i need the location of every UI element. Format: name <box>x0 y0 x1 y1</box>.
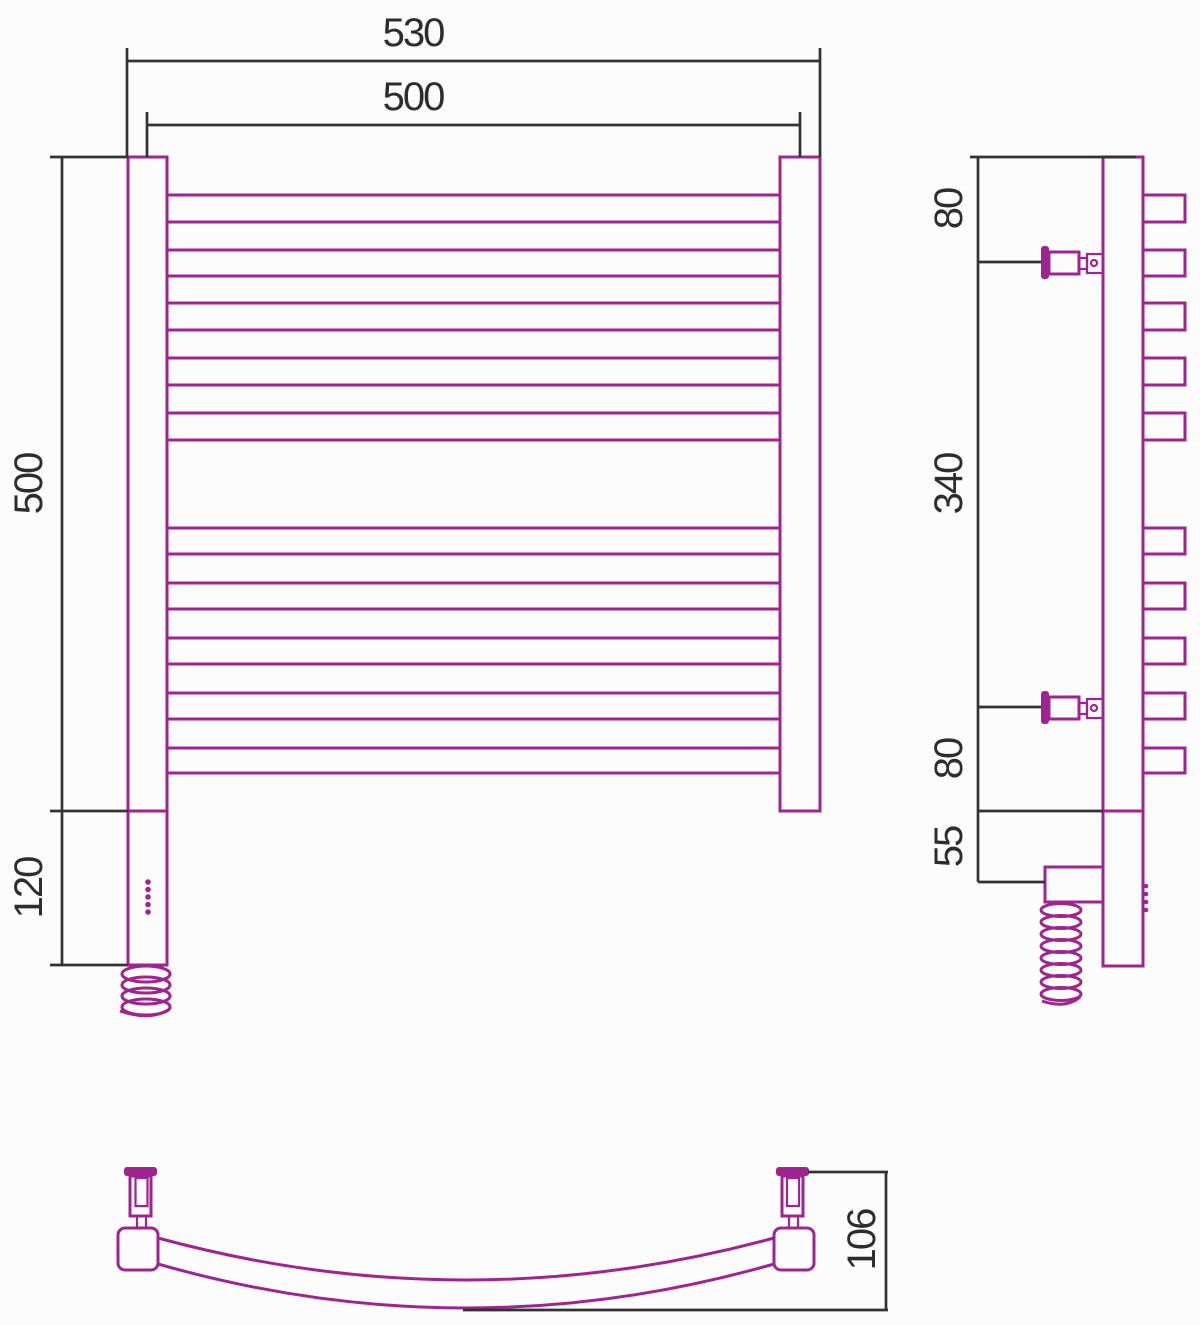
tube-row <box>167 583 780 609</box>
side-dimension-lines <box>970 157 1136 882</box>
dim-top-offset: 80 <box>927 188 971 229</box>
tube-row <box>167 358 780 385</box>
dim-center-width: 500 <box>383 75 444 119</box>
drawing-canvas: 530 500 500 120 <box>0 0 1200 1325</box>
curved-tube-outer <box>158 1238 774 1280</box>
tube-stub <box>1143 195 1185 222</box>
side-post <box>1103 157 1143 811</box>
tube-row <box>167 303 780 330</box>
wall-bracket-upper <box>1041 246 1103 279</box>
front-view: 530 500 500 120 <box>7 11 820 1016</box>
led-indicator-dots <box>145 879 151 915</box>
heater-terminal-box <box>1045 867 1103 902</box>
right-post <box>780 157 820 811</box>
wall-bracket-lower <box>1041 691 1103 724</box>
left-post <box>128 157 167 811</box>
tube-stub <box>1143 693 1185 719</box>
dim-height: 500 <box>7 453 51 514</box>
side-heating-element <box>1103 811 1143 966</box>
tube-stub <box>1143 250 1185 276</box>
top-dimension-lines <box>463 1172 888 1310</box>
technical-drawing: 530 500 500 120 <box>0 0 1200 1325</box>
tube-row <box>167 250 780 276</box>
dim-bracket-spacing: 340 <box>927 453 971 514</box>
tube-stub <box>1143 528 1185 554</box>
side-view: 80 340 80 55 <box>927 157 1185 1004</box>
dim-depth: 106 <box>840 1209 884 1270</box>
wall-bracket-right <box>774 1167 814 1270</box>
power-cable-coil <box>120 966 170 1016</box>
tube-row <box>167 413 780 440</box>
tube-row <box>167 528 780 554</box>
tube-stub <box>1143 358 1185 385</box>
dim-overall-width: 530 <box>383 11 444 55</box>
top-view: 106 <box>118 1167 888 1310</box>
tube-stub <box>1143 413 1185 440</box>
tube-row <box>167 195 780 222</box>
tube-row <box>167 748 780 773</box>
dim-heater-height: 120 <box>7 857 51 918</box>
tube-row <box>167 693 780 719</box>
tube-rows <box>167 195 780 773</box>
tube-stub <box>1143 583 1185 609</box>
dim-heater-offset: 55 <box>927 826 971 867</box>
curved-tube-inner <box>158 1264 774 1308</box>
wall-bracket-left <box>118 1167 158 1270</box>
side-power-cable-coil <box>1041 904 1081 1005</box>
tube-stub <box>1143 748 1185 773</box>
tube-stub <box>1143 638 1185 664</box>
tube-row <box>167 638 780 664</box>
dim-bottom-offset: 80 <box>927 738 971 779</box>
tube-stub <box>1143 303 1185 330</box>
side-tube-stubs <box>1143 195 1185 773</box>
